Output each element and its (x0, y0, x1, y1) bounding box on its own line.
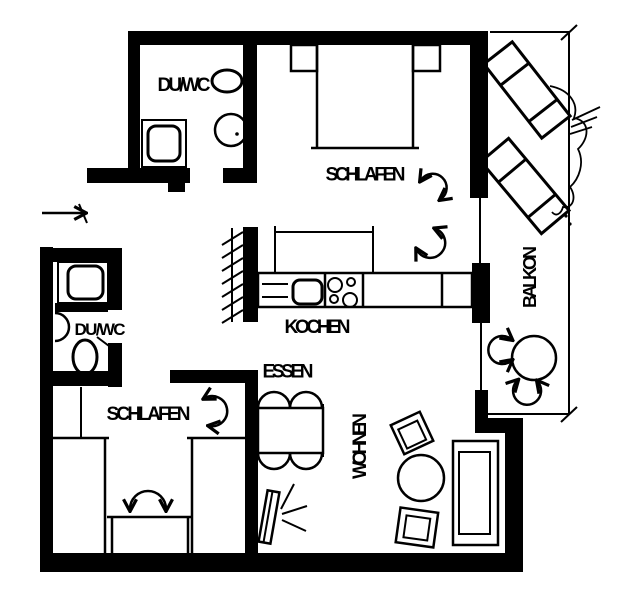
balcony-table-icon (512, 336, 556, 380)
nightstand-icon (413, 45, 440, 71)
wall-duwc-bottom-right-upper (108, 248, 122, 310)
lounger-icon (484, 42, 570, 138)
balcony-furniture (481, 42, 600, 405)
kitchen-fixtures (222, 226, 472, 323)
tv-icon (259, 484, 307, 544)
label-schlafen-bottom: SCHLAFEN (107, 404, 191, 425)
washbasin-icon (55, 313, 69, 341)
sofa-icon (453, 441, 498, 545)
tall-cabinet-icon (275, 226, 373, 273)
shower-tray-icon (148, 126, 180, 161)
wall-schlafen-bottom-top (170, 370, 258, 383)
living-room-furniture (259, 412, 498, 548)
wall-duwc-top-right (243, 43, 257, 182)
wall-balcony-upper (470, 31, 488, 198)
chair-icon (290, 392, 322, 408)
wall-top (128, 31, 488, 45)
toilet-icon (212, 70, 242, 92)
washbasin-drain-icon (235, 132, 239, 136)
floor-plan-drawing: DU/WC SCHLAFEN KOCHEN ESSEN DU/WC SCHLAF… (0, 0, 632, 600)
washbasin-icon (215, 114, 247, 146)
toilet-icon (73, 340, 97, 374)
coffee-table-icon (398, 455, 444, 501)
wardrobe-icon (53, 438, 109, 553)
sink-basin-icon (293, 280, 322, 304)
swing-arrow-icon (205, 396, 227, 426)
wall-right-lower (505, 418, 523, 572)
wall-left-upper (128, 31, 140, 183)
label-essen: ESSEN (263, 362, 314, 383)
shower-tray-icon (68, 266, 103, 299)
armchair-icon (391, 412, 434, 455)
wall-hall-bar-right (223, 168, 257, 183)
double-bed-icon (311, 45, 419, 148)
wall-balcony-mid (472, 263, 490, 323)
label-wohnen: WOHNEN (350, 413, 371, 479)
swing-arrow-icon (130, 491, 166, 509)
label-duwc-top: DU/WC (158, 75, 211, 96)
label-duwc-bottom: DU/WC (75, 320, 126, 339)
swing-arrow-icon (488, 336, 511, 364)
duct-hatch-icon (222, 228, 243, 323)
wardrobe-icon (187, 438, 246, 553)
nightstand-icon (291, 45, 317, 71)
bed-icon (107, 517, 193, 553)
swing-arrow-icon (421, 174, 447, 199)
swing-arrow-icon (417, 229, 445, 258)
wall-stub (168, 183, 185, 192)
dining-table-icon (258, 408, 323, 453)
wall-kitchen-left (243, 227, 258, 322)
chair-icon (258, 453, 290, 469)
label-balkon: BALKON (520, 246, 540, 308)
floor-plan-page: DU/WC SCHLAFEN KOCHEN ESSEN DU/WC SCHLAF… (0, 0, 632, 600)
wall-shower-divider (55, 303, 108, 312)
plant-icon (550, 86, 600, 226)
cooktop-icon (328, 278, 357, 307)
armchair-icon (396, 508, 439, 548)
chair-icon (258, 392, 290, 408)
wall-hall-bar-left (87, 168, 190, 183)
label-kochen: KOCHEN (285, 317, 351, 338)
bathroom-lower-fixtures (55, 262, 113, 374)
swing-arrow-icon (513, 381, 541, 405)
walls (40, 31, 523, 572)
worktop-icon (258, 273, 472, 307)
chair-icon (290, 453, 322, 469)
wall-essen-left (245, 370, 258, 555)
bedroom-upper-furniture (291, 45, 447, 258)
wall-left-lower (40, 247, 53, 572)
lounger-icon (481, 138, 569, 233)
wall-bottom (40, 553, 523, 572)
dining-furniture (258, 392, 323, 469)
entrance-arrow-icon (42, 204, 87, 223)
label-schlafen-top: SCHLAFEN (326, 165, 406, 186)
wall-duwc-bottom-bar (45, 371, 122, 386)
